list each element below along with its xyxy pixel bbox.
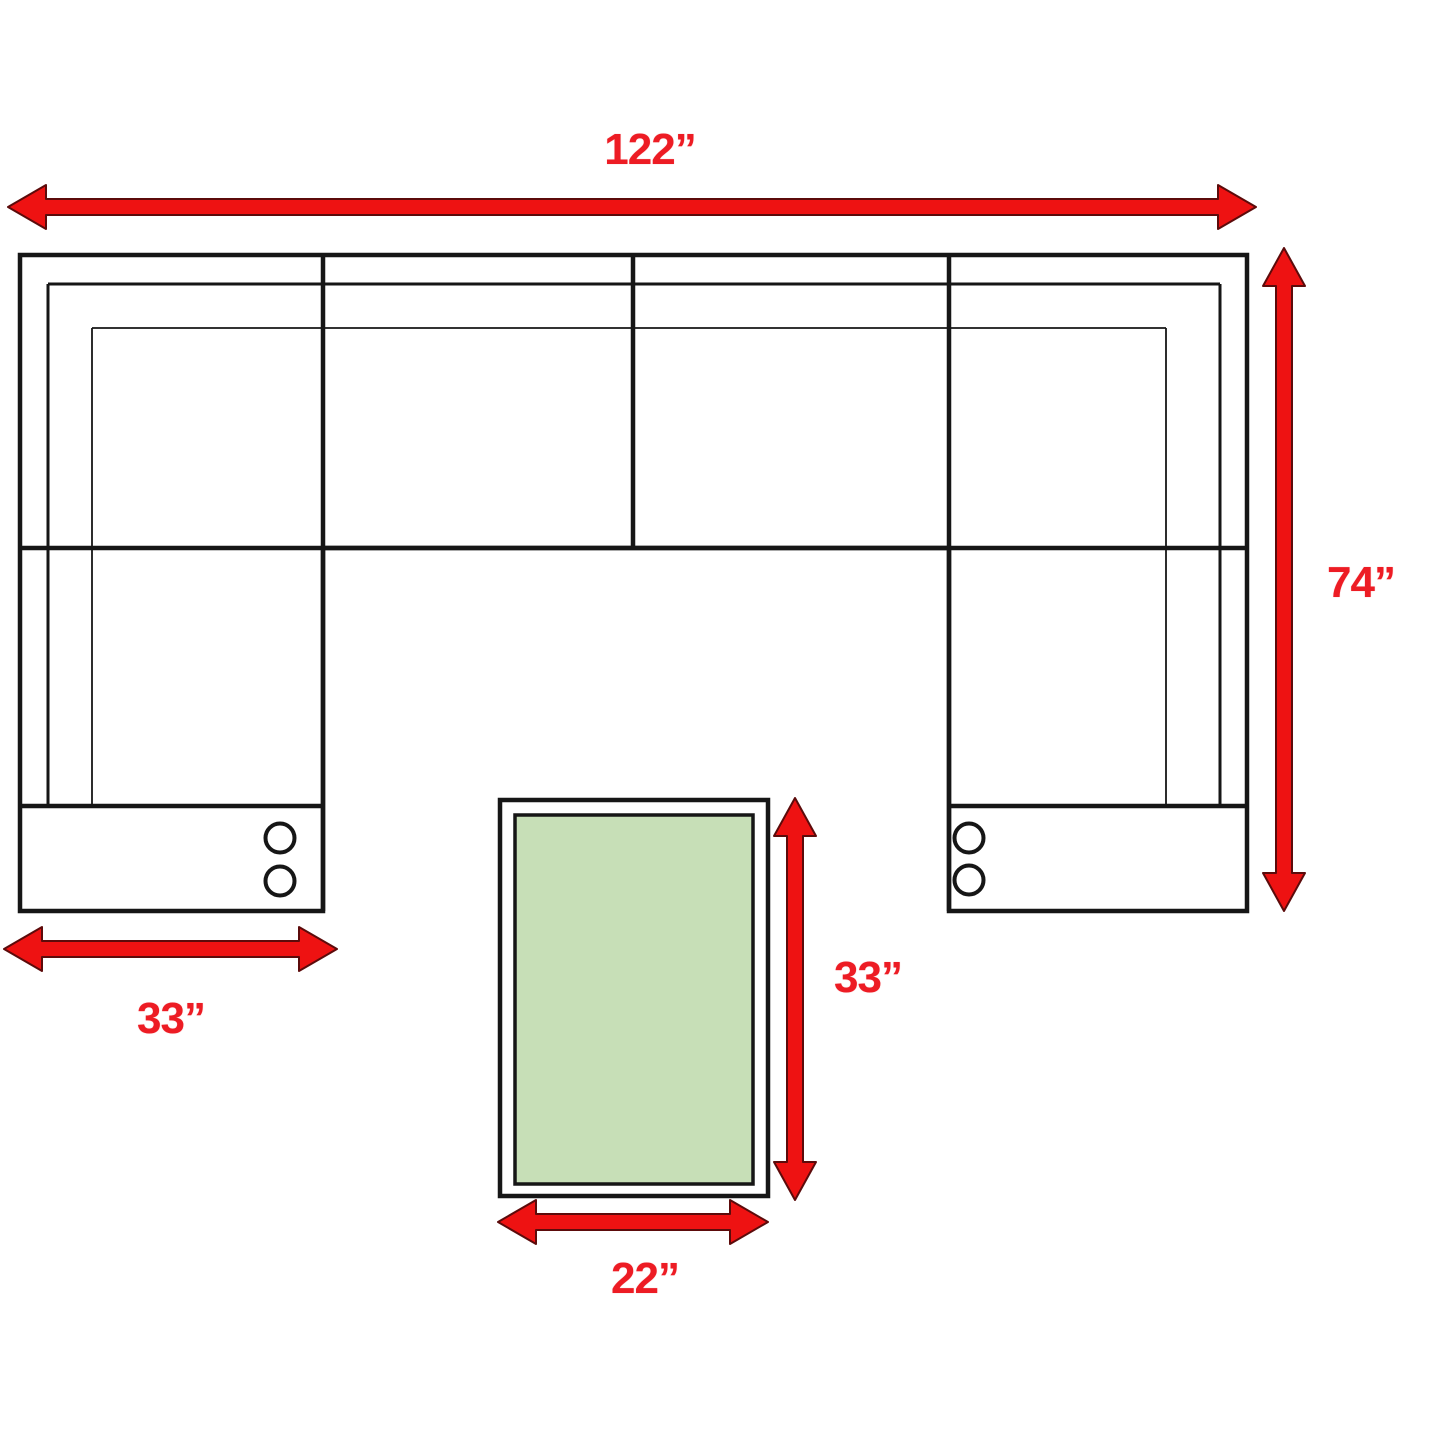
ottoman-green-top	[515, 815, 753, 1184]
overall-depth-arrow	[1263, 248, 1305, 911]
chaise-width-arrow	[4, 927, 337, 971]
cup-holder-icon	[955, 824, 984, 853]
cup-holder-icon	[266, 867, 295, 896]
cup-holder-icon	[955, 866, 984, 895]
overall-depth-label: 74”	[1327, 561, 1395, 605]
ottoman-length-label: 33”	[834, 956, 902, 1000]
overall-width-arrow	[8, 185, 1256, 229]
sofa-dimension-diagram: 122” 74” 33” 33” 22”	[0, 0, 1445, 1445]
overall-width-label: 122”	[604, 128, 695, 172]
ottoman-width-label: 22”	[611, 1257, 679, 1301]
ottoman-length-arrow	[774, 798, 816, 1200]
cup-holder-icon	[266, 824, 295, 853]
chaise-width-label: 33”	[137, 997, 205, 1041]
floor-plan-drawing	[0, 0, 1445, 1445]
ottoman-width-arrow	[498, 1200, 768, 1244]
